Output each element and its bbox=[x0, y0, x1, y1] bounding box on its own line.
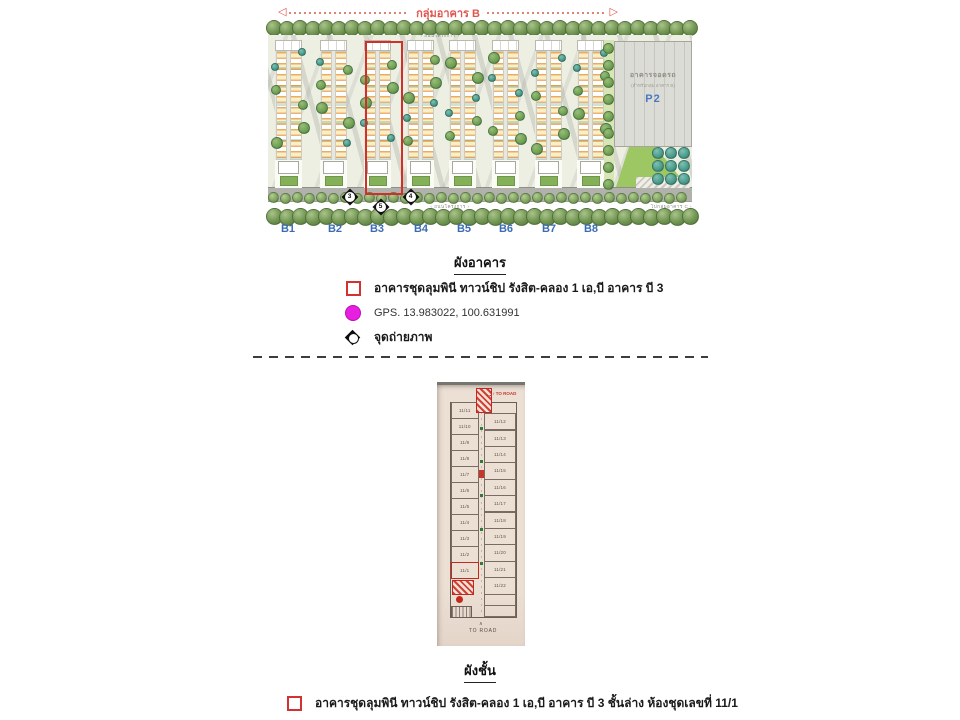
unit-number: 11/2 bbox=[460, 552, 469, 557]
green-tree-icon bbox=[271, 85, 281, 95]
green-tree-icon bbox=[515, 111, 525, 121]
bush-icon bbox=[436, 192, 447, 203]
lobby-box bbox=[278, 161, 299, 174]
site-building-strip-B2 bbox=[320, 40, 347, 188]
unit-number: 11/10 bbox=[459, 424, 471, 429]
corridor-green-dot bbox=[480, 562, 483, 565]
strip-lobby bbox=[320, 161, 347, 188]
legend-item: อาคารชุดลุมพินี ทาวน์ชิป รังสิต-คลอง 1 เ… bbox=[285, 694, 738, 713]
strip-units bbox=[492, 51, 519, 160]
green-tree-icon bbox=[488, 126, 498, 136]
bush-icon bbox=[280, 193, 291, 204]
parking-title: อาคารจอดรถ bbox=[615, 70, 691, 81]
legend-icon-cell bbox=[344, 281, 374, 296]
unit-11-2: 11/2 bbox=[451, 546, 480, 563]
garden-patch bbox=[582, 176, 600, 186]
unit-11-18: 11/18 bbox=[484, 511, 516, 529]
building-label-B3: B3 bbox=[370, 223, 384, 235]
unit-number: 11/11 bbox=[459, 408, 471, 413]
camera-marker-number: 3 bbox=[345, 192, 355, 202]
green-tree-icon bbox=[298, 100, 308, 110]
strip-lobby bbox=[449, 161, 476, 188]
unit-column-right bbox=[592, 51, 604, 160]
unit-number: 11/22 bbox=[494, 583, 506, 588]
unit-11-12: 11/12 bbox=[484, 413, 516, 431]
green-tree-icon bbox=[445, 57, 457, 69]
site-building-strip-B7 bbox=[535, 40, 562, 188]
green-tree-icon bbox=[603, 94, 614, 105]
bush-icon bbox=[628, 192, 639, 203]
unit-11-10: 11/10 bbox=[451, 418, 480, 435]
unit-11-16: 11/16 bbox=[484, 479, 516, 497]
teal-tree-icon bbox=[298, 48, 306, 56]
bush-icon bbox=[268, 192, 279, 203]
teal-tree-icon bbox=[343, 139, 351, 147]
building-label-B2: B2 bbox=[328, 223, 342, 235]
corridor-green-dot bbox=[480, 427, 483, 430]
green-tree-icon bbox=[531, 143, 543, 155]
camera-marker-3: 3 bbox=[342, 189, 357, 204]
red-circle-marker bbox=[456, 596, 463, 603]
strip-lobby bbox=[577, 161, 604, 188]
unit-number: 11/14 bbox=[494, 452, 506, 457]
unit-11-4: 11/4 bbox=[451, 514, 480, 531]
bush-icon bbox=[580, 192, 591, 203]
bush-icon bbox=[328, 193, 339, 204]
service-hatch-bottom bbox=[452, 580, 474, 595]
to-road-arrow-icon: ∧ bbox=[479, 621, 483, 627]
green-tree-icon bbox=[403, 92, 415, 104]
lobby-box bbox=[323, 161, 344, 174]
green-tree-icon bbox=[271, 137, 283, 149]
red-outline-square-icon bbox=[287, 696, 302, 711]
arrow-right-icon: ▷ bbox=[610, 5, 618, 20]
building-plan-title: ผังอาคาร bbox=[454, 252, 506, 275]
bush-icon bbox=[460, 192, 471, 203]
bush-icon bbox=[568, 193, 579, 204]
green-tree-icon bbox=[472, 72, 484, 84]
parking-code: P2 bbox=[615, 93, 691, 105]
floor-plan-title: ผังชั้น bbox=[464, 660, 496, 683]
unit-column-left bbox=[493, 51, 505, 160]
teal-tree-icon bbox=[678, 160, 690, 172]
unit-number: 11/8 bbox=[460, 456, 469, 461]
strip-lobby bbox=[275, 161, 302, 188]
building-plan-title-row: ผังอาคาร bbox=[0, 252, 960, 275]
unit-11-11: 11/11 bbox=[451, 402, 480, 419]
strip-roof bbox=[492, 40, 519, 51]
lobby-box bbox=[538, 161, 559, 174]
teal-tree-icon bbox=[652, 173, 664, 185]
strip-roof bbox=[320, 40, 347, 51]
building-group-label: กลุ่มอาคาร B bbox=[412, 4, 484, 22]
unit-number: 11/6 bbox=[460, 488, 469, 493]
unit-number: 11/9 bbox=[460, 440, 469, 445]
unit-number: 11/1 bbox=[460, 568, 469, 573]
green-tree-icon bbox=[472, 116, 482, 126]
building-labels-row: B1B2B3B4B5B6B7B8 bbox=[268, 223, 692, 237]
floor-plan-photo: › TO ROAD 11/1111/1011/911/811/711/611/5… bbox=[437, 382, 525, 646]
unit-11-20: 11/20 bbox=[484, 544, 516, 562]
floor-plan-legend: อาคารชุดลุมพินี ทาวน์ชิป รังสิต-คลอง 1 เ… bbox=[285, 694, 738, 713]
bush-icon bbox=[484, 192, 495, 203]
corridor-green-dot bbox=[480, 460, 483, 463]
unit-number: 11/7 bbox=[460, 472, 469, 477]
teal-tree-icon bbox=[316, 58, 324, 66]
tree-icon bbox=[682, 20, 698, 36]
unit-11-5: 11/5 bbox=[451, 498, 480, 515]
unit-column-right bbox=[464, 51, 476, 160]
green-tree-icon bbox=[573, 86, 583, 96]
strip-units bbox=[577, 51, 604, 160]
building-label-B5: B5 bbox=[457, 223, 471, 235]
bush-icon bbox=[520, 193, 531, 204]
green-tree-icon bbox=[403, 136, 413, 146]
green-tree-icon bbox=[573, 108, 585, 120]
teal-tree-icon bbox=[665, 160, 677, 172]
report-page: { "site_plan": { "group_arrow_label": "ก… bbox=[0, 0, 960, 720]
teal-tree-icon bbox=[445, 109, 453, 117]
unit-number: 11/4 bbox=[460, 520, 469, 525]
teal-tree-icon bbox=[573, 64, 581, 72]
dashed-divider bbox=[253, 356, 708, 358]
legend-label: อาคารชุดลุมพินี ทาวน์ชิป รังสิต-คลอง 1 เ… bbox=[315, 694, 738, 713]
unit-number: 11/18 bbox=[494, 518, 506, 523]
unit-number: 11/17 bbox=[494, 501, 506, 506]
unit-number: 11/13 bbox=[494, 436, 506, 441]
bush-icon bbox=[544, 193, 555, 204]
green-tree-icon bbox=[430, 77, 442, 89]
teal-tree-icon bbox=[271, 63, 279, 71]
teal-tree-icon bbox=[678, 147, 690, 159]
camera-marker-number: 4 bbox=[406, 192, 416, 202]
green-tree-icon bbox=[298, 122, 310, 134]
legend-icon-cell bbox=[285, 696, 315, 711]
unit-number: 11/19 bbox=[494, 534, 506, 539]
red-outline-square-icon bbox=[346, 281, 361, 296]
teal-tree-icon bbox=[488, 74, 496, 82]
strip-roof bbox=[407, 40, 434, 51]
legend-label: อาคารชุดลุมพินี ทาวน์ชิป รังสิต-คลอง 1 เ… bbox=[374, 279, 663, 298]
bush-icon bbox=[604, 192, 615, 203]
building-label-B6: B6 bbox=[499, 223, 513, 235]
bush-icon bbox=[508, 192, 519, 203]
unit-number: 11/12 bbox=[494, 419, 506, 424]
highlight-rect-building-b3 bbox=[365, 41, 403, 195]
bush-icon bbox=[592, 193, 603, 204]
green-tree-icon bbox=[445, 131, 455, 141]
unit-11-1: 11/1 bbox=[451, 562, 480, 579]
garden-patch bbox=[540, 176, 558, 186]
lobby-box bbox=[495, 161, 516, 174]
green-tree-icon bbox=[603, 162, 614, 173]
legend-icon-cell bbox=[344, 305, 374, 321]
unit-11-13: 11/13 bbox=[484, 429, 516, 447]
legend-item: อาคารชุดลุมพินี ทาวน์ชิป รังสิต-คลอง 1 เ… bbox=[344, 279, 663, 298]
building-label-B4: B4 bbox=[414, 223, 428, 235]
unit-11-3: 11/3 bbox=[451, 530, 480, 547]
unit-11-14: 11/14 bbox=[484, 446, 516, 464]
camera-marker-5: 5 bbox=[373, 199, 388, 214]
garden-patch bbox=[454, 176, 472, 186]
road-label-bottom: ‹ ถนนโครงการ › bbox=[408, 203, 492, 210]
strip-lobby bbox=[492, 161, 519, 188]
floor-plan-title-row: ผังชั้น bbox=[0, 660, 960, 683]
arrow-left-icon: ◁ bbox=[278, 5, 286, 20]
unit-number: 11/15 bbox=[494, 468, 506, 473]
strip-lobby bbox=[407, 161, 434, 188]
strip-lobby bbox=[535, 161, 562, 188]
site-plan-map: อาคารจอดรถ (สำหรับกลุ่ม อาคาร B) P2 bbox=[268, 35, 692, 202]
site-building-strip-B4 bbox=[407, 40, 434, 188]
building-label-B7: B7 bbox=[542, 223, 556, 235]
entrance-hatch-top bbox=[476, 388, 492, 413]
service-room bbox=[484, 605, 516, 617]
lobby-box bbox=[580, 161, 601, 174]
parking-subtitle: (สำหรับกลุ่ม อาคาร B) bbox=[615, 82, 691, 89]
teal-tree-icon bbox=[665, 173, 677, 185]
teal-tree-icon bbox=[652, 147, 664, 159]
teal-tree-icon bbox=[678, 173, 690, 185]
green-tree-icon bbox=[603, 77, 614, 88]
bush-icon bbox=[292, 192, 303, 203]
site-building-strip-B5 bbox=[449, 40, 476, 188]
site-building-strip-B6 bbox=[492, 40, 519, 188]
teal-tree-icon bbox=[558, 54, 566, 62]
unit-11-22: 11/22 bbox=[484, 577, 516, 595]
unit-number: 11/16 bbox=[494, 485, 506, 490]
green-tree-icon bbox=[531, 91, 541, 101]
bush-icon bbox=[556, 192, 567, 203]
green-tree-icon bbox=[603, 43, 614, 54]
teal-tree-icon bbox=[531, 69, 539, 77]
to-road-label-top: › TO ROAD bbox=[493, 391, 516, 396]
strip-roof bbox=[535, 40, 562, 51]
unit-number: 11/21 bbox=[494, 567, 506, 572]
building-label-B1: B1 bbox=[281, 223, 295, 235]
camera-marker-4: 4 bbox=[403, 189, 418, 204]
photo-point-diamond-icon bbox=[344, 329, 361, 346]
unit-11-19: 11/19 bbox=[484, 528, 516, 546]
teal-tree-icon bbox=[515, 89, 523, 97]
unit-11-17: 11/17 bbox=[484, 495, 516, 513]
unit-number: 11/3 bbox=[460, 536, 469, 541]
magenta-circle-icon bbox=[345, 305, 361, 321]
legend-item: GPS. 13.983022, 100.631991 bbox=[344, 305, 663, 321]
site-building-strip-B8 bbox=[577, 40, 604, 188]
unit-number: 11/5 bbox=[460, 504, 469, 509]
green-tree-icon bbox=[515, 133, 527, 145]
legend-label: GPS. 13.983022, 100.631991 bbox=[374, 307, 520, 319]
green-tree-icon bbox=[603, 60, 614, 71]
teal-tree-icon bbox=[665, 147, 677, 159]
green-tree-icon bbox=[316, 102, 328, 114]
site-building-strip-B1 bbox=[275, 40, 302, 188]
green-tree-icon bbox=[430, 55, 440, 65]
unit-11-7: 11/7 bbox=[451, 466, 480, 483]
unit-11-15: 11/15 bbox=[484, 462, 516, 480]
camera-marker-number: 5 bbox=[376, 202, 386, 212]
stairs-icon bbox=[451, 606, 472, 618]
garden-patch bbox=[497, 176, 515, 186]
to-road-dash-line bbox=[486, 395, 493, 396]
strip-roof bbox=[577, 40, 604, 51]
bush-icon bbox=[304, 193, 315, 204]
legend-item: จุดถ่ายภาพ bbox=[344, 328, 663, 347]
to-group-c-label: ไปกลุ่มอาคาร C › bbox=[618, 203, 692, 210]
teal-tree-icon bbox=[652, 160, 664, 172]
corridor-green-dot bbox=[480, 528, 483, 531]
green-tree-icon bbox=[603, 145, 614, 156]
unit-11-9: 11/9 bbox=[451, 434, 480, 451]
dotted-line bbox=[487, 12, 607, 14]
legend-label: จุดถ่ายภาพ bbox=[374, 328, 432, 347]
legend-icon-cell bbox=[344, 329, 374, 346]
green-tree-icon bbox=[316, 80, 326, 90]
green-tree-icon bbox=[603, 111, 614, 122]
garden-patch bbox=[280, 176, 298, 186]
parking-building: อาคารจอดรถ (สำหรับกลุ่ม อาคาร B) P2 bbox=[614, 41, 692, 147]
bush-icon bbox=[652, 192, 663, 203]
strip-roof bbox=[449, 40, 476, 51]
group-b-direction-arrow: ◁ กลุ่มอาคาร B ▷ bbox=[278, 5, 618, 20]
building-label-B8: B8 bbox=[584, 223, 598, 235]
bush-icon bbox=[532, 192, 543, 203]
green-tree-icon bbox=[488, 52, 500, 64]
bush-icon bbox=[496, 193, 507, 204]
unit-number: 11/20 bbox=[494, 550, 506, 555]
green-tree-icon bbox=[343, 117, 355, 129]
green-tree-icon bbox=[558, 128, 570, 140]
teal-tree-icon bbox=[403, 114, 411, 122]
unit-11-6: 11/6 bbox=[451, 482, 480, 499]
garden-patch bbox=[412, 176, 430, 186]
road-label-top: ‹ ถนนโครงการ › bbox=[398, 32, 482, 39]
teal-tree-icon bbox=[472, 94, 480, 102]
corridor-green-dot bbox=[480, 494, 483, 497]
corridor-red-marker bbox=[479, 468, 484, 478]
lobby-box bbox=[452, 161, 473, 174]
to-road-label-bottom: TO ROAD bbox=[461, 628, 505, 634]
green-tree-icon bbox=[603, 179, 614, 190]
building-plan-legend: อาคารชุดลุมพินี ทาวน์ชิป รังสิต-คลอง 1 เ… bbox=[344, 279, 663, 347]
green-tree-icon bbox=[343, 65, 353, 75]
dotted-line bbox=[289, 12, 409, 14]
tree-row-bottom bbox=[268, 208, 692, 224]
lobby-box bbox=[410, 161, 431, 174]
garden-patch bbox=[325, 176, 343, 186]
unit-11-8: 11/8 bbox=[451, 450, 480, 467]
teal-tree-icon bbox=[430, 99, 438, 107]
unit-11-21: 11/21 bbox=[484, 561, 516, 579]
green-tree-icon bbox=[603, 128, 614, 139]
bush-icon bbox=[676, 192, 687, 203]
bush-icon bbox=[316, 192, 327, 203]
unit-column-right bbox=[550, 51, 562, 160]
green-tree-icon bbox=[558, 106, 568, 116]
